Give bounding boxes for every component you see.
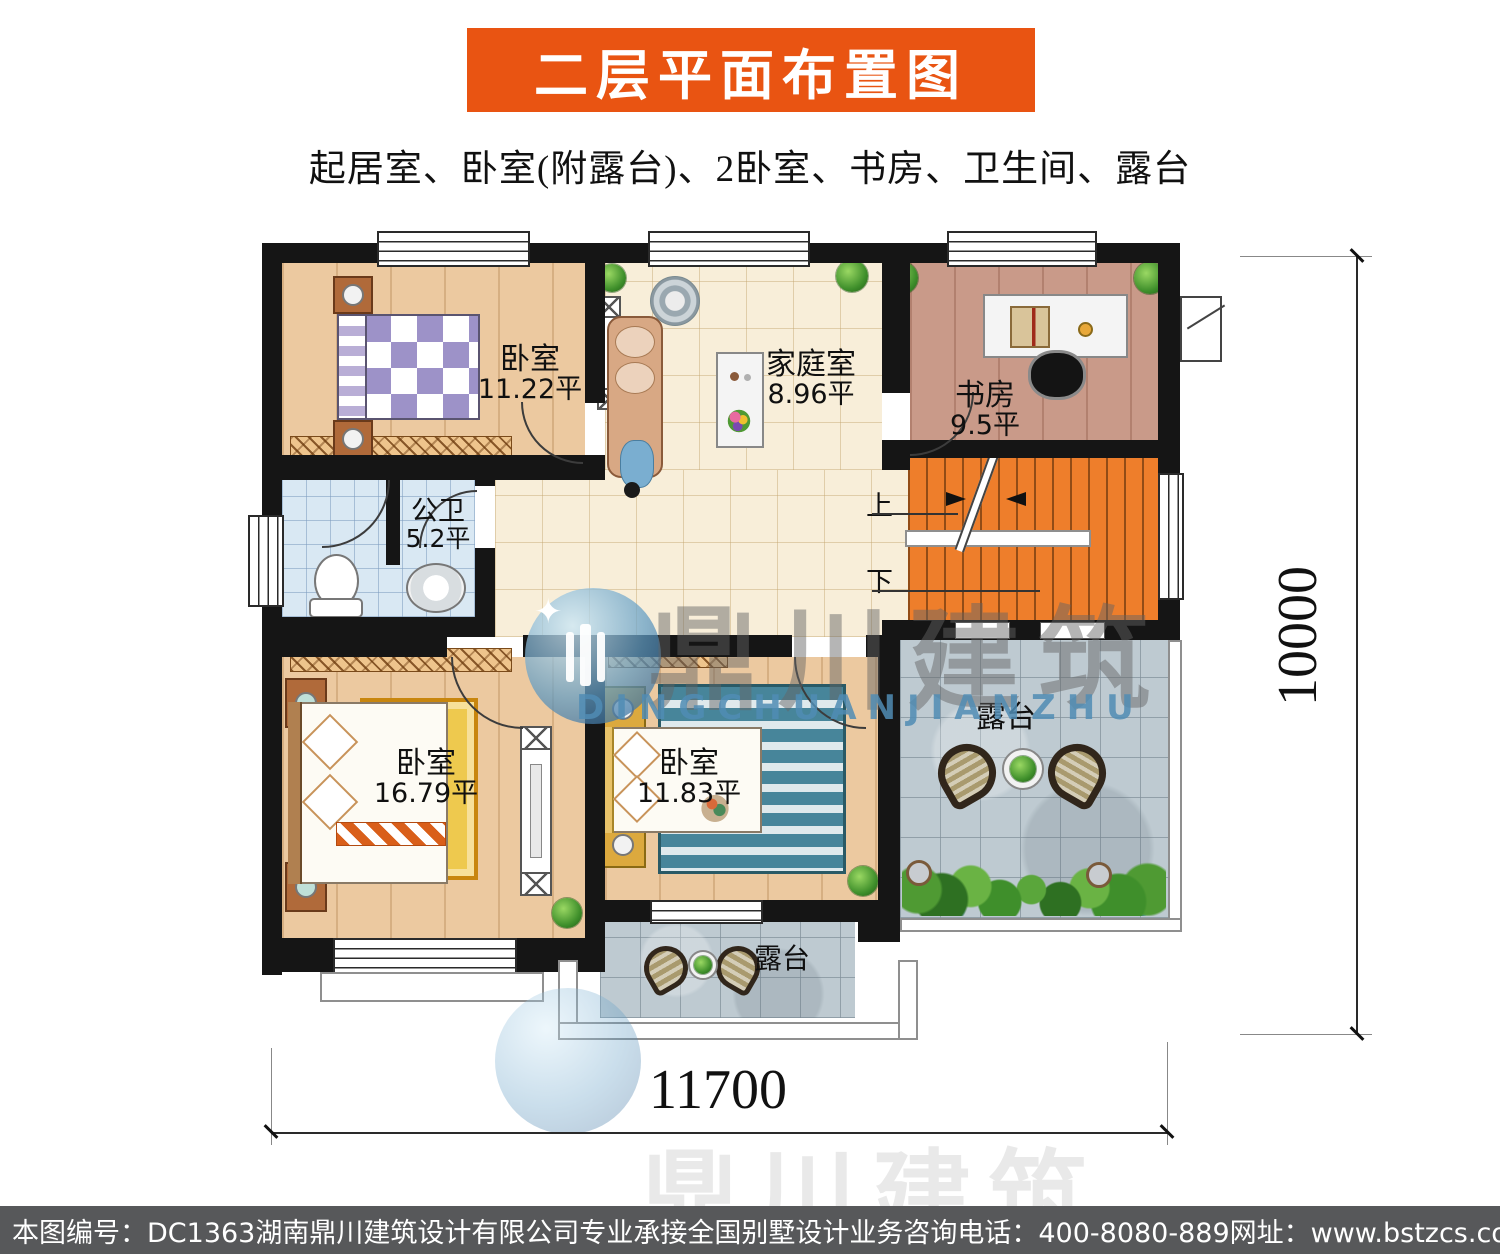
logo-mark bbox=[597, 632, 605, 682]
room-area: 16.79平 bbox=[374, 780, 478, 808]
terrace-table bbox=[688, 950, 718, 980]
room-label-bathroom: 公卫 5.2平 bbox=[398, 496, 478, 554]
dimension-right-value: 10000 bbox=[1266, 556, 1324, 716]
bed-blanket-band bbox=[336, 822, 446, 846]
wardrobe-end bbox=[520, 726, 552, 750]
nightstand bbox=[333, 276, 373, 314]
wall bbox=[262, 637, 282, 975]
person-on-sofa bbox=[620, 440, 654, 488]
stair-handrail bbox=[905, 530, 1091, 547]
room-name: 家庭室 bbox=[766, 349, 856, 381]
room-area: 9.5平 bbox=[950, 412, 1020, 440]
nightstand bbox=[333, 420, 373, 458]
dimension-line-right bbox=[1356, 256, 1358, 1035]
room-label-family-room: 家庭室 8.96平 bbox=[752, 343, 870, 415]
stair-arrow-right-icon bbox=[946, 492, 966, 506]
wall bbox=[262, 938, 333, 972]
person-head bbox=[624, 482, 640, 498]
room-area: 8.96平 bbox=[767, 381, 854, 409]
wardrobe-end bbox=[520, 872, 552, 896]
room-area: 5.2平 bbox=[406, 526, 471, 552]
lamp-icon bbox=[612, 834, 634, 856]
room-area: 11.83平 bbox=[637, 780, 741, 808]
room-name: 露台 bbox=[754, 944, 810, 973]
footer-phone: 咨询电话：400-8080-889 bbox=[903, 1211, 1229, 1250]
logo-sparkle-icon: ✦ bbox=[534, 592, 563, 632]
title-banner: 二层平面布置图 bbox=[467, 28, 1035, 112]
plant-icon bbox=[848, 866, 878, 896]
table-dot bbox=[730, 372, 739, 381]
wall bbox=[882, 243, 910, 393]
logo-mark bbox=[566, 632, 574, 682]
room-name: 书房 bbox=[955, 380, 1015, 412]
footer-bar: 本图编号：DC1363 湖南鼎川建筑设计有限公司专业承接全国别墅设计业务 咨询电… bbox=[0, 1206, 1500, 1254]
laptop-icon bbox=[1010, 306, 1050, 348]
wall bbox=[763, 900, 900, 922]
watermark-en: DINGCHUANJIANZHU bbox=[576, 688, 1145, 728]
terrace-railing-right bbox=[1168, 640, 1182, 930]
terrace-door-window bbox=[650, 900, 763, 924]
plant-icon bbox=[552, 898, 582, 928]
bed-headboard bbox=[288, 702, 302, 884]
flowers-icon bbox=[726, 408, 752, 434]
small-round-table bbox=[1086, 862, 1112, 888]
window-sill bbox=[320, 972, 544, 1002]
room-list-subtitle: 起居室、卧室(附露台)、2卧室、书房、卫生间、露台 bbox=[0, 138, 1500, 192]
stair-arrow-left-icon bbox=[1006, 492, 1026, 506]
dimension-bottom-value: 11700 bbox=[608, 1058, 828, 1118]
room-name: 公卫 bbox=[411, 498, 465, 526]
table-dot bbox=[744, 374, 751, 381]
room-area: 11.22平 bbox=[478, 376, 582, 404]
mug-icon bbox=[1078, 322, 1093, 337]
wall bbox=[262, 455, 605, 480]
footer-website: 网址：www.bstzcs.com bbox=[1230, 1211, 1500, 1250]
desk bbox=[983, 294, 1128, 358]
small-round-table bbox=[906, 860, 932, 886]
dimension-line-bottom bbox=[271, 1132, 1168, 1134]
room-name: 卧室 bbox=[659, 748, 719, 780]
wardrobe-handle bbox=[530, 764, 542, 858]
room-name: 卧室 bbox=[396, 748, 456, 780]
room-name: 卧室 bbox=[500, 344, 560, 376]
wall bbox=[858, 920, 900, 942]
wall bbox=[585, 900, 650, 922]
wall bbox=[262, 635, 447, 657]
floor-plan-page: 二层平面布置图 起居室、卧室(附露台)、2卧室、书房、卫生间、露台 上 下 bbox=[0, 0, 1500, 1254]
lamp-icon bbox=[342, 284, 364, 306]
terrace-railing-bottom bbox=[900, 918, 1182, 932]
bed-pillows bbox=[339, 316, 367, 418]
sofa-cushion bbox=[615, 326, 655, 358]
terrace-table bbox=[1002, 748, 1044, 790]
logo-mark bbox=[580, 624, 591, 686]
wall bbox=[262, 617, 495, 637]
footer-drawing-no: 本图编号：DC1363 bbox=[12, 1211, 255, 1250]
room-label-terrace-small: 露台 bbox=[732, 944, 832, 974]
extension-line bbox=[1240, 256, 1372, 257]
room-label-bedroom-top-left: 卧室 11.22平 bbox=[455, 343, 605, 405]
lamp-icon bbox=[342, 428, 364, 450]
footer-company: 湖南鼎川建筑设计有限公司专业承接全国别墅设计业务 bbox=[255, 1211, 903, 1250]
plant-icon bbox=[694, 956, 712, 974]
sink-icon bbox=[406, 563, 466, 613]
page-title: 二层平面布置图 bbox=[534, 31, 968, 110]
wall bbox=[475, 455, 495, 486]
stair-up-line bbox=[872, 513, 958, 515]
terrace-greenery bbox=[902, 850, 1166, 916]
window bbox=[377, 231, 530, 267]
wall bbox=[585, 920, 605, 954]
room-label-study: 书房 9.5平 bbox=[933, 382, 1037, 438]
small-terrace-railing-right bbox=[898, 960, 918, 1040]
toilet-tank bbox=[309, 598, 363, 618]
plant-icon bbox=[836, 260, 868, 292]
bay-window bbox=[1180, 296, 1222, 362]
extension-line bbox=[1240, 1034, 1372, 1035]
room-label-bedroom-bottom-left: 卧室 16.79平 bbox=[352, 748, 500, 808]
stair-up-label: 上 bbox=[866, 484, 893, 523]
window bbox=[248, 515, 284, 607]
sofa-cushion bbox=[615, 362, 655, 394]
window bbox=[333, 938, 517, 974]
plant-icon bbox=[1010, 756, 1036, 782]
window bbox=[947, 231, 1097, 267]
window bbox=[648, 231, 810, 267]
room-label-bedroom-bottom-center: 卧室 11.83平 bbox=[618, 748, 760, 808]
